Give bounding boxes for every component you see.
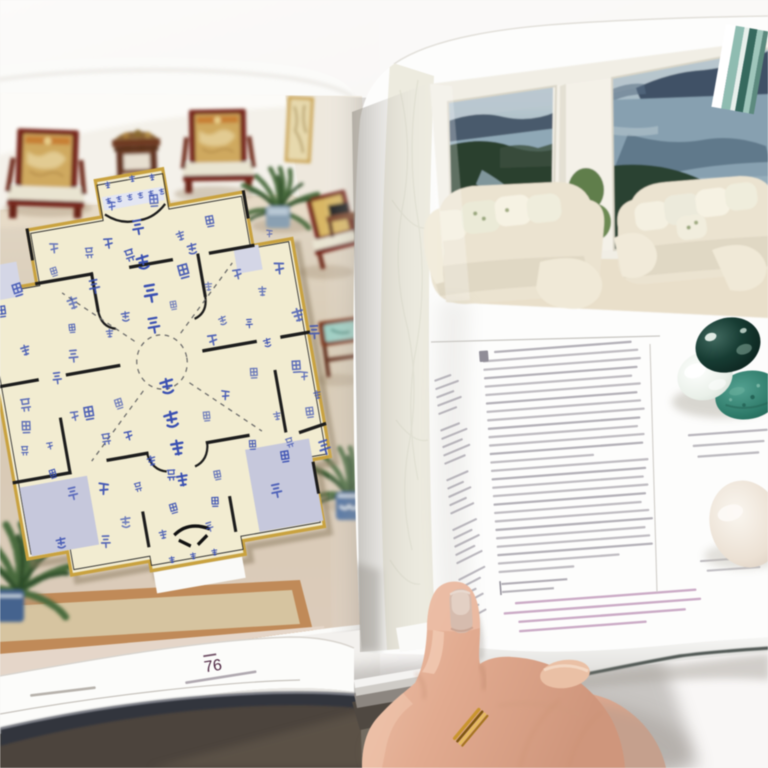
svg-text:76: 76 (203, 657, 223, 677)
